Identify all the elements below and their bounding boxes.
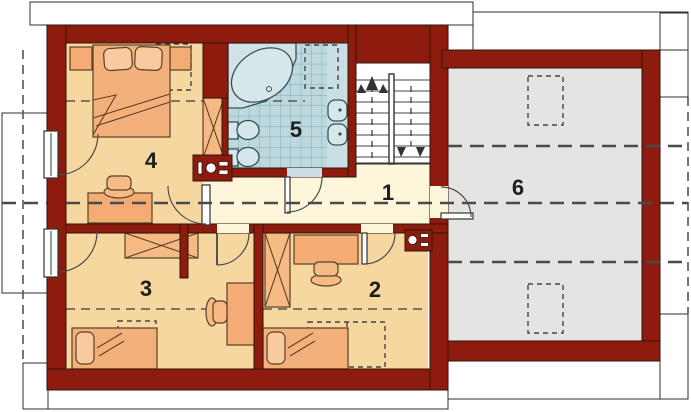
flue-round-icon: [408, 236, 417, 245]
bidet: [228, 148, 259, 167]
floor-plan-page: 1 2 3 4 5 6: [0, 0, 691, 412]
roof-strip-bottom-left: [23, 363, 48, 409]
nightstand-left: [70, 47, 92, 70]
door-bathroom-leaf: [285, 177, 290, 213]
chair-room2-back: [314, 262, 338, 276]
wall-shaft-room4-bath: [203, 43, 228, 98]
wall-stub-room3: [180, 224, 188, 278]
chair-room2: [311, 262, 341, 286]
roof-strip-top-right: [473, 12, 688, 50]
bidet-bowl: [237, 148, 259, 167]
wall-bottom-room6: [448, 341, 660, 361]
room-label-4: 4: [145, 148, 158, 173]
wall-left: [47, 25, 66, 390]
flue-round-icon: [206, 163, 216, 173]
desk-room2: [294, 235, 358, 264]
toilet: [228, 121, 259, 140]
door-room4-leaf: [202, 185, 210, 225]
bed-room2-pillow: [267, 332, 285, 364]
flue-slot-icon: [198, 162, 202, 174]
sink-upper: [328, 100, 347, 121]
chair-room3-back: [213, 301, 227, 323]
wardrobe-room4: [203, 98, 224, 158]
chair-room3: [206, 298, 227, 326]
floor-plan-svg: 1 2 3 4 5 6: [0, 0, 691, 412]
door-room2-leaf: [362, 233, 367, 264]
chair-room4-back: [107, 176, 131, 190]
wall-bathroom-right: [348, 25, 356, 177]
room-label-5: 5: [290, 117, 302, 142]
pillow-right: [134, 46, 162, 70]
roof-strip-top-left: [30, 2, 473, 25]
room-label-3: 3: [140, 276, 152, 301]
chimney-block-room2: [405, 230, 432, 251]
single-bed-room2: [263, 328, 348, 369]
single-bed-room3: [72, 328, 157, 369]
chair-room4: [104, 176, 134, 198]
roof-strip-bottom-right: [448, 361, 660, 399]
nightstand-right: [170, 47, 191, 70]
desk-room3: [227, 283, 257, 345]
flue-vent-icon: [421, 234, 429, 238]
doorway-room2: [361, 224, 393, 233]
wall-bottom-main: [47, 369, 448, 390]
wardrobe-room2: [265, 233, 290, 307]
chimney-block-hall: [193, 155, 232, 181]
door-room6-leaf: [441, 213, 473, 219]
roof-strip-right-lower: [660, 314, 688, 399]
stair-stringer: [389, 74, 394, 164]
sink-lower-drain: [338, 132, 341, 135]
roof-strip-top-notch: [448, 25, 473, 50]
bed-room3-pillow: [76, 332, 94, 364]
pillow-left: [103, 47, 132, 71]
wall-top-room6: [442, 50, 660, 68]
room-label-2: 2: [369, 277, 381, 302]
doorway-bathroom: [287, 168, 322, 177]
wall-right-room6: [642, 50, 660, 345]
sink-lower: [328, 124, 347, 145]
flue-vent-icon: [219, 162, 228, 167]
toilet-bowl: [237, 121, 259, 140]
wall-room3-room2: [254, 224, 263, 369]
room-label-1: 1: [382, 180, 394, 205]
roof-strip-right-upper: [660, 13, 688, 97]
flue-vent-icon: [421, 243, 429, 247]
doorway-room3: [217, 224, 249, 233]
flue-vent-icon: [219, 170, 228, 175]
room-6-floor: [448, 68, 642, 341]
sink-upper-drain: [338, 108, 341, 111]
room-label-6: 6: [512, 175, 524, 200]
